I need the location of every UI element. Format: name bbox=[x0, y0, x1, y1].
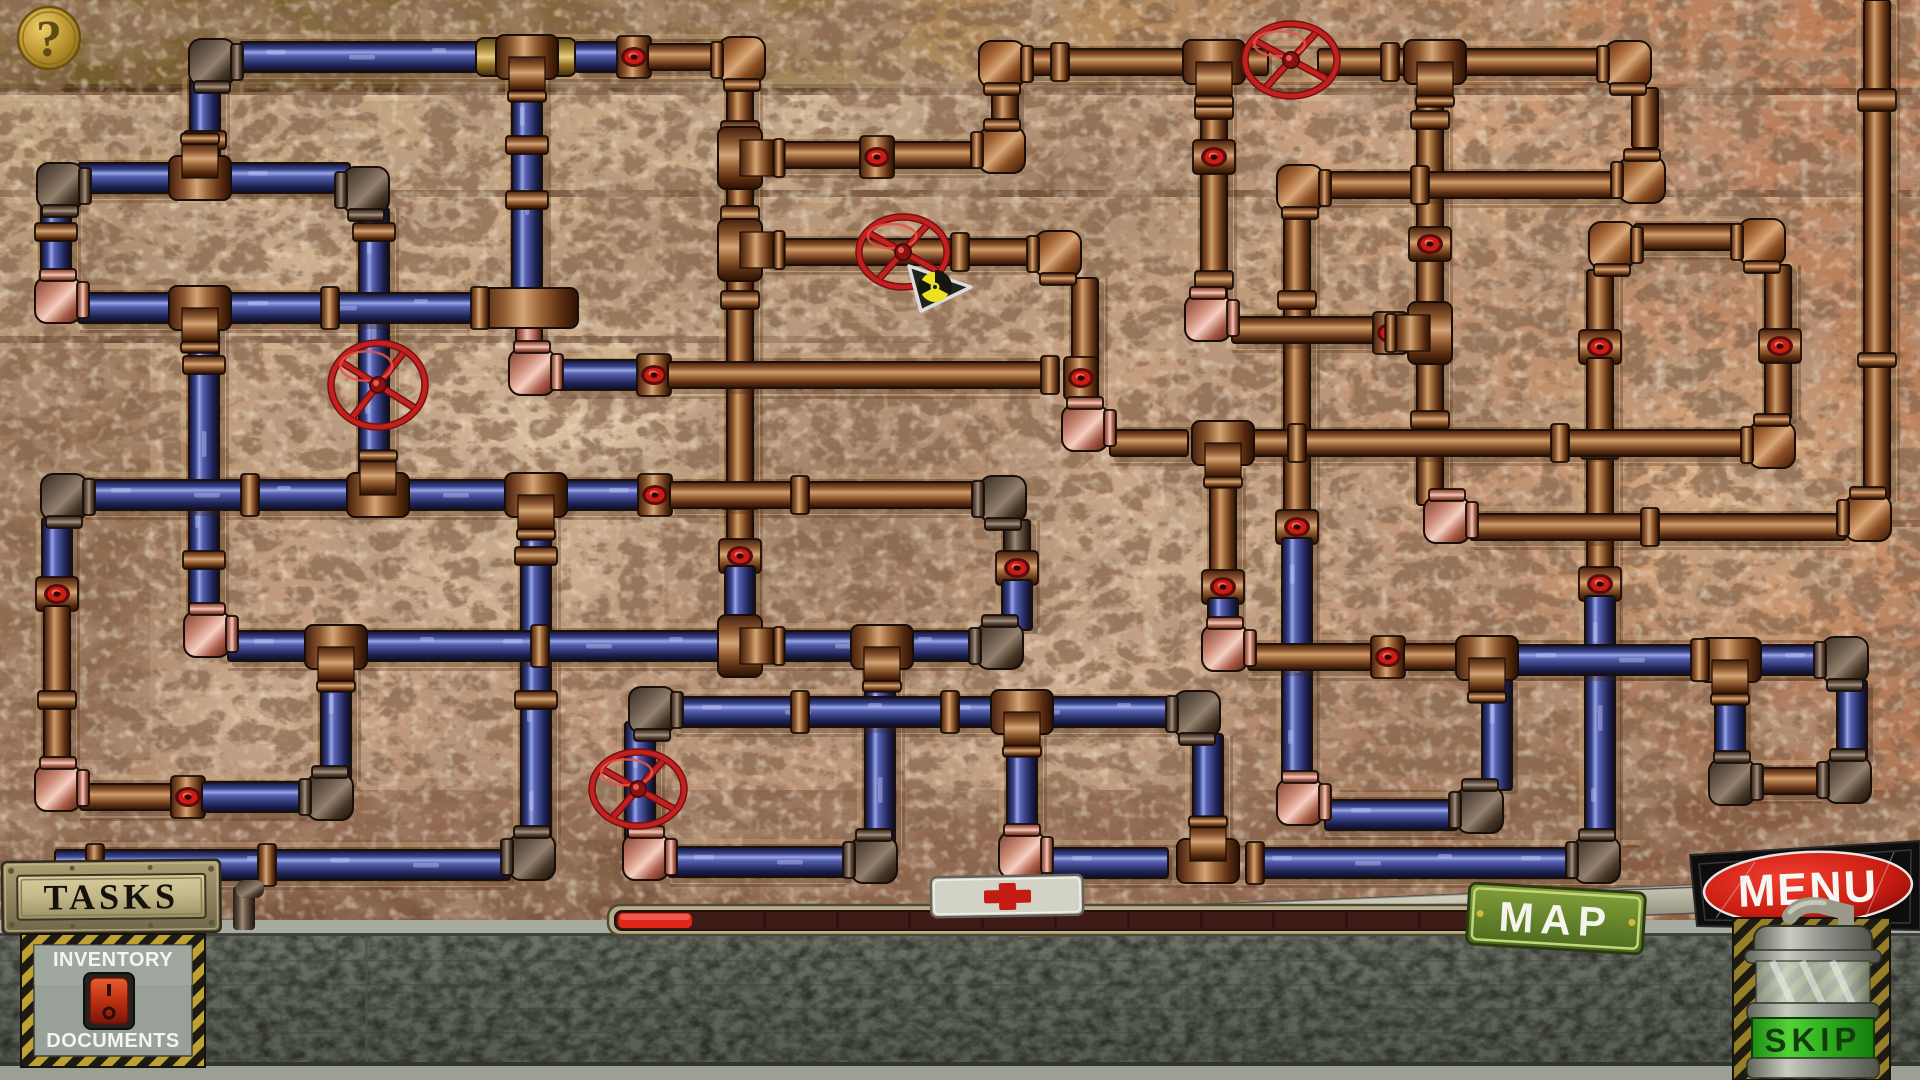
svg-text:INVENTORY: INVENTORY bbox=[53, 949, 173, 971]
svg-text:DOCUMENTS: DOCUMENTS bbox=[46, 1030, 179, 1052]
svg-text:TASKS: TASKS bbox=[43, 876, 179, 917]
svg-text:MAP: MAP bbox=[1497, 893, 1614, 947]
svg-text:?: ? bbox=[36, 11, 62, 68]
svg-text:SKIP: SKIP bbox=[1764, 1020, 1862, 1059]
